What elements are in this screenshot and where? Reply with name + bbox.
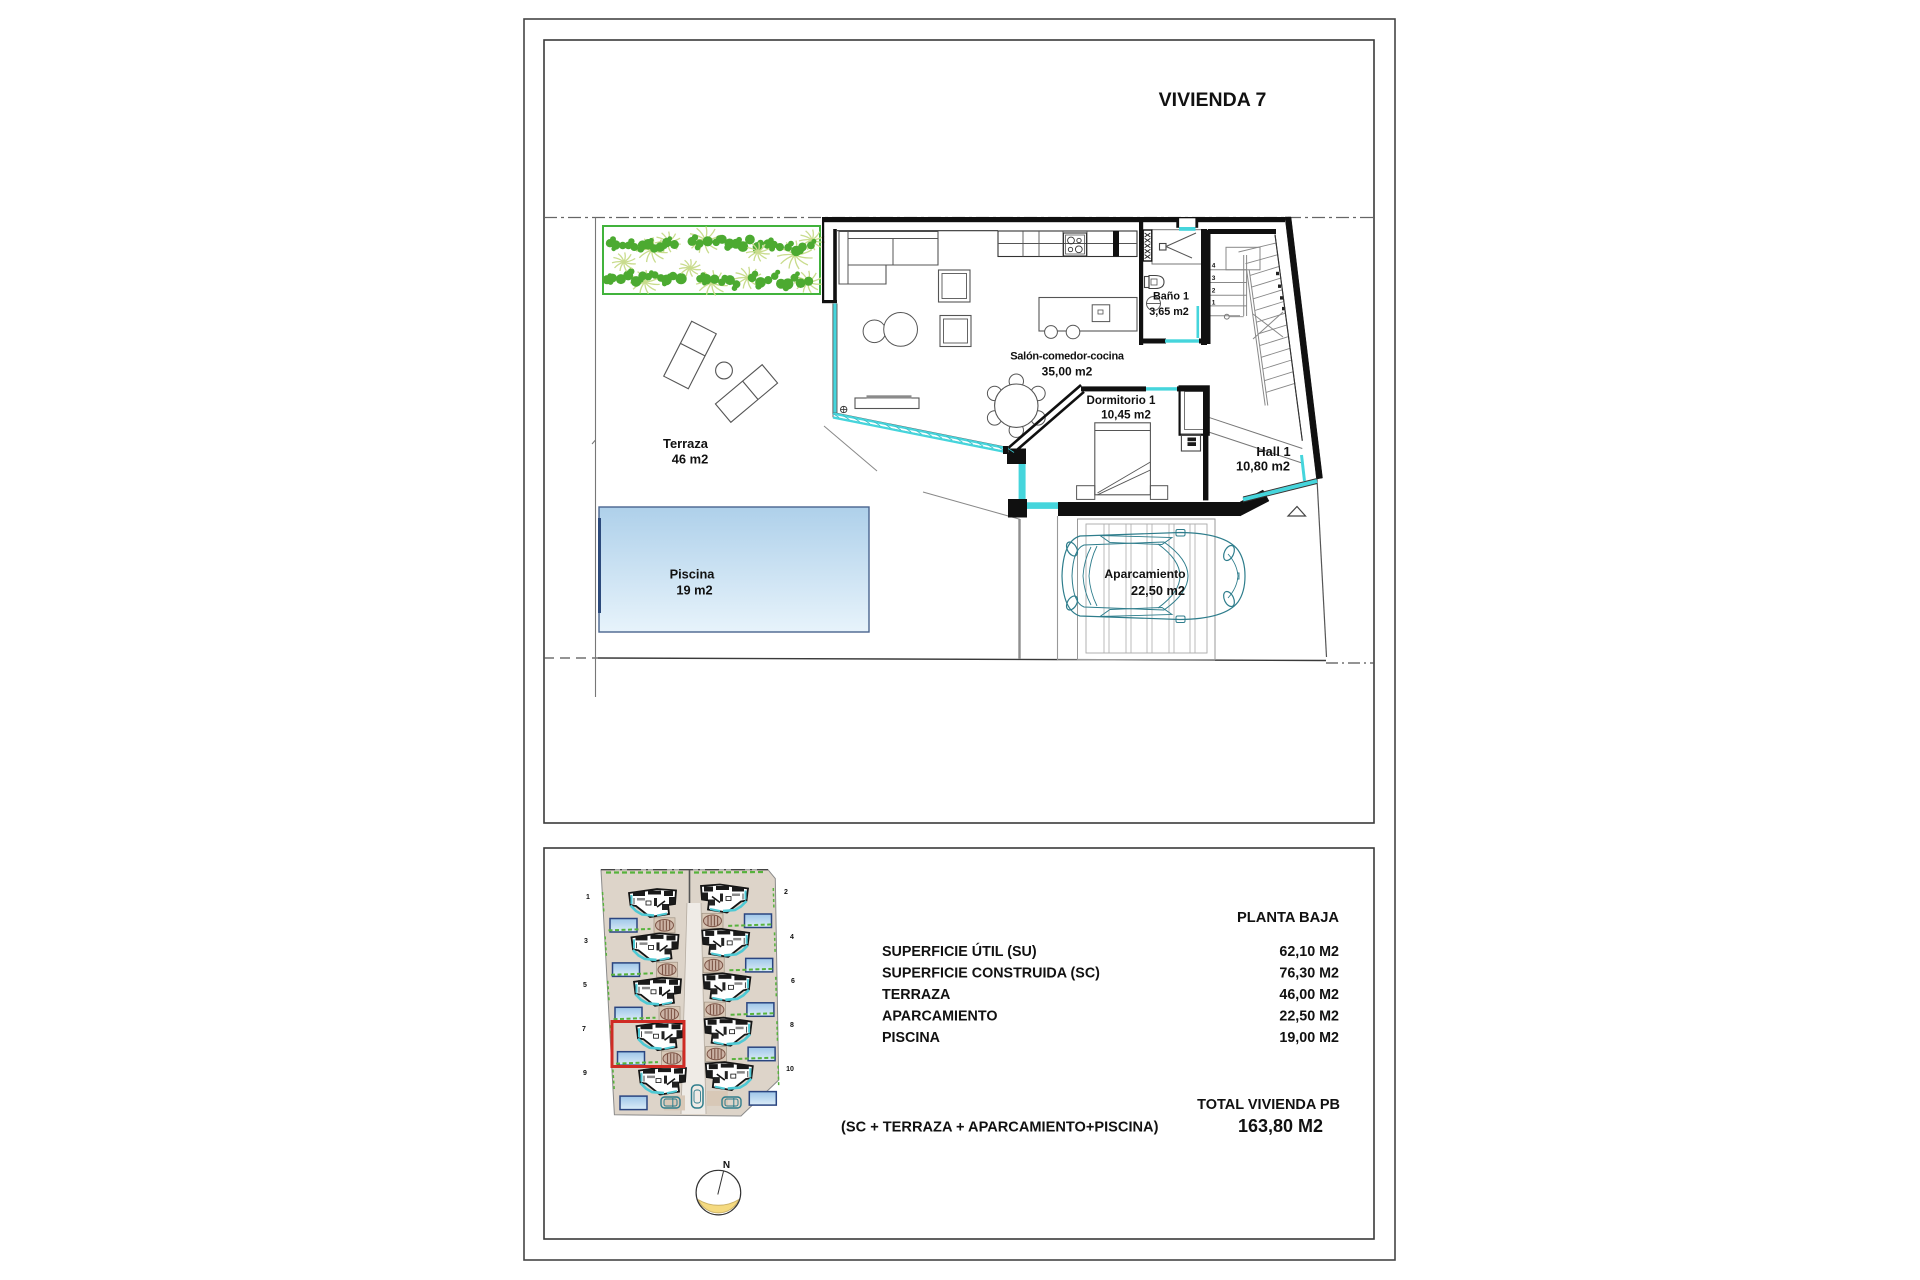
svg-text:6: 6 bbox=[791, 978, 795, 985]
svg-text:3: 3 bbox=[1212, 275, 1216, 282]
svg-text:10,45 m2: 10,45 m2 bbox=[1101, 408, 1151, 422]
svg-text:4: 4 bbox=[1212, 263, 1216, 270]
svg-text:VIVIENDA 7: VIVIENDA 7 bbox=[1159, 89, 1267, 111]
svg-text:3,65 m2: 3,65 m2 bbox=[1149, 306, 1189, 318]
svg-text:1: 1 bbox=[586, 894, 590, 901]
svg-text:1: 1 bbox=[1212, 300, 1216, 307]
svg-text:10,80 m2: 10,80 m2 bbox=[1236, 459, 1290, 474]
svg-text:62,10 M2: 62,10 M2 bbox=[1279, 944, 1339, 960]
svg-text:19,00 M2: 19,00 M2 bbox=[1279, 1030, 1339, 1046]
svg-text:163,80 M2: 163,80 M2 bbox=[1238, 1116, 1323, 1136]
svg-text:PISCINA: PISCINA bbox=[882, 1030, 940, 1046]
svg-text:Salón-comedor-cocina: Salón-comedor-cocina bbox=[1010, 351, 1125, 363]
svg-text:10: 10 bbox=[786, 1066, 794, 1073]
svg-text:N: N bbox=[723, 1160, 730, 1171]
svg-text:Hall 1: Hall 1 bbox=[1256, 444, 1290, 459]
svg-text:3: 3 bbox=[584, 938, 588, 945]
svg-text:Baño 1: Baño 1 bbox=[1153, 291, 1189, 303]
svg-text:2: 2 bbox=[784, 889, 788, 896]
svg-text:Dormitorio 1: Dormitorio 1 bbox=[1087, 394, 1156, 407]
svg-text:9: 9 bbox=[583, 1070, 587, 1077]
svg-text:7: 7 bbox=[582, 1026, 586, 1033]
svg-text:22,50 m2: 22,50 m2 bbox=[1131, 583, 1185, 598]
svg-text:76,30 M2: 76,30 M2 bbox=[1279, 966, 1339, 982]
svg-text:SUPERFICIE CONSTRUIDA (SC): SUPERFICIE CONSTRUIDA (SC) bbox=[882, 966, 1100, 982]
svg-text:TERRAZA: TERRAZA bbox=[882, 987, 950, 1003]
svg-text:46 m2: 46 m2 bbox=[672, 452, 709, 467]
svg-text:TOTAL VIVIENDA PB: TOTAL VIVIENDA PB bbox=[1197, 1097, 1340, 1113]
svg-text:5: 5 bbox=[583, 982, 587, 989]
svg-text:46,00 M2: 46,00 M2 bbox=[1279, 987, 1339, 1003]
svg-text:APARCAMIENTO: APARCAMIENTO bbox=[882, 1009, 997, 1025]
svg-text:Terraza: Terraza bbox=[663, 436, 709, 451]
svg-text:19 m2: 19 m2 bbox=[676, 583, 712, 598]
svg-text:Piscina: Piscina bbox=[670, 567, 716, 582]
svg-text:2: 2 bbox=[1212, 288, 1216, 295]
svg-text:PLANTA BAJA: PLANTA BAJA bbox=[1237, 910, 1339, 926]
svg-text:SUPERFICIE ÚTIL (SU): SUPERFICIE ÚTIL (SU) bbox=[882, 942, 1037, 960]
svg-text:(SC + TERRAZA + APARCAMIENTO+P: (SC + TERRAZA + APARCAMIENTO+PISCINA) bbox=[841, 1120, 1159, 1136]
svg-text:8: 8 bbox=[790, 1022, 794, 1029]
svg-text:4: 4 bbox=[790, 934, 794, 941]
svg-text:35,00 m2: 35,00 m2 bbox=[1042, 365, 1093, 379]
svg-text:Aparcamiento: Aparcamiento bbox=[1104, 567, 1185, 581]
svg-text:22,50 M2: 22,50 M2 bbox=[1279, 1009, 1339, 1025]
